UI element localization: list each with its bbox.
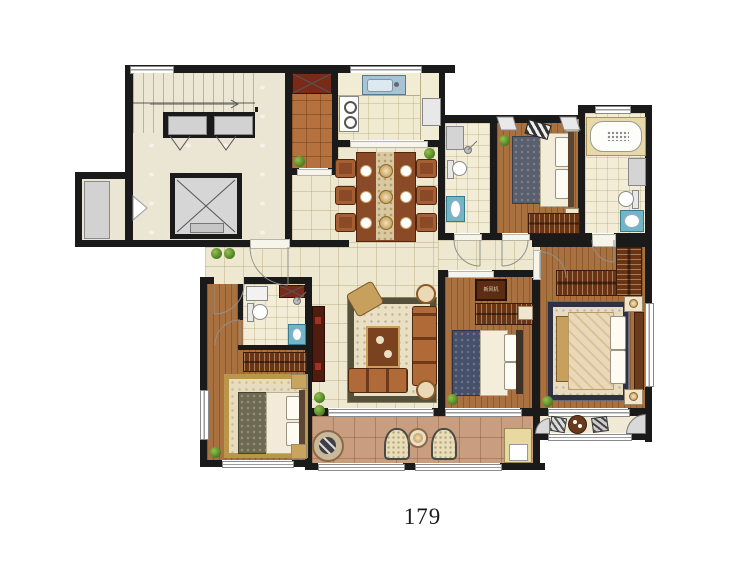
plan-linework-overlay	[0, 0, 750, 563]
floor-plan-canvas: 新风机	[0, 0, 750, 563]
shaft-x-marks	[150, 74, 331, 297]
door-swing-arcs	[214, 240, 614, 345]
casement-window-icon	[497, 117, 517, 130]
page-number: 179	[95, 504, 750, 530]
casement-window-icon	[560, 117, 580, 130]
